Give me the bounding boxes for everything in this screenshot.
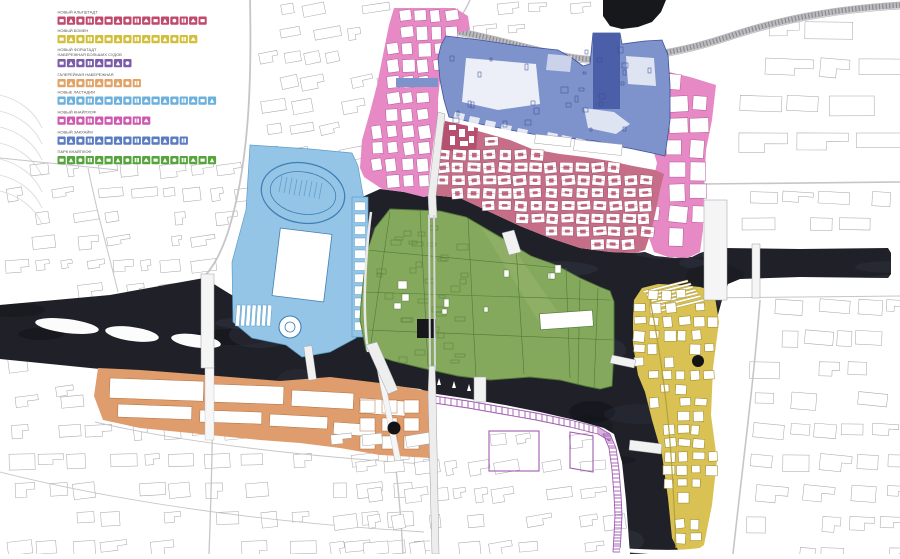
svg-text:НОВЫЙ КНАЙПХОФ: НОВЫЙ КНАЙПХОФ <box>58 110 97 115</box>
svg-text:НАБЕРЕЖНАЯ БОЛЬШИХ СУДОВ: НАБЕРЕЖНАЯ БОЛЬШИХ СУДОВ <box>58 52 123 57</box>
svg-text:НОВЫЕ ЛАСТАДИИ: НОВЫЕ ЛАСТАДИИ <box>58 90 96 95</box>
svg-text:ГАЛЕРЕЙНАЯ НАБЕРЕЖНАЯ: ГАЛЕРЕЙНАЯ НАБЕРЕЖНАЯ <box>58 72 114 77</box>
svg-text:НОВЫЙ ЗАКХАЙМ: НОВЫЙ ЗАКХАЙМ <box>58 130 93 135</box>
svg-text:НОВЫЙ БОМЕН: НОВЫЙ БОМЕН <box>58 28 89 33</box>
svg-text:НОВЫЙ АЛЬТШТАДТ: НОВЫЙ АЛЬТШТАДТ <box>58 10 99 15</box>
svg-text:ПАРК КНАЙПХОФ: ПАРК КНАЙПХОФ <box>58 149 92 154</box>
